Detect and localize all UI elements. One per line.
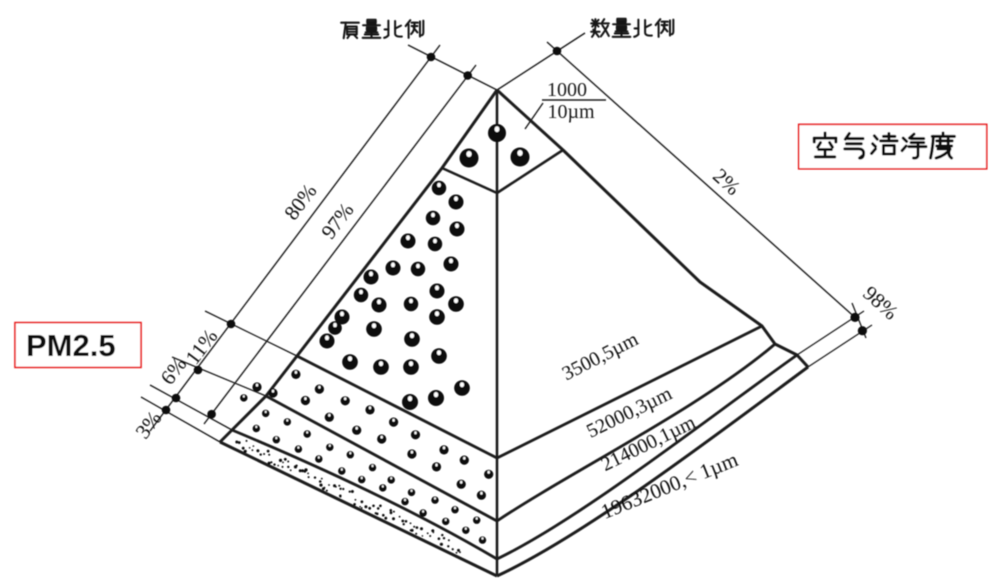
svg-text:1000: 1000 — [547, 79, 587, 101]
svg-text:10µm: 10µm — [547, 101, 595, 123]
svg-text:PM2.5: PM2.5 — [26, 328, 116, 363]
